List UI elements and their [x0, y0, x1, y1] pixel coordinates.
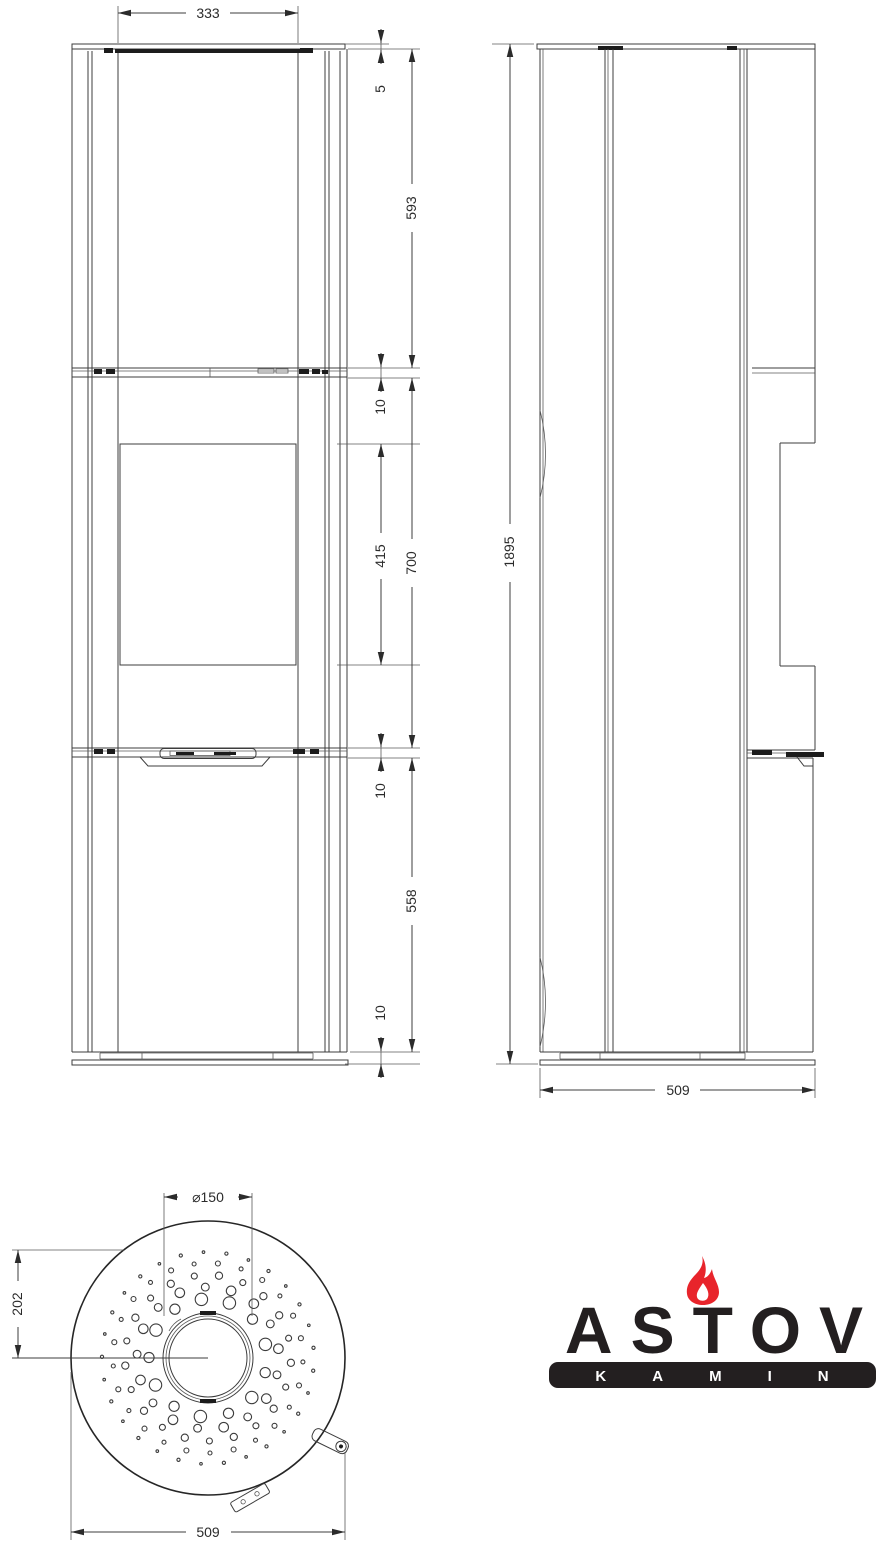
- perforation-hole: [245, 1456, 248, 1459]
- svg-text:700: 700: [403, 551, 419, 575]
- svg-text:415: 415: [372, 544, 388, 568]
- perforation-hole: [266, 1320, 274, 1328]
- technical-drawing-sheet: 333 5 593: [0, 0, 895, 1556]
- perforation-hole: [223, 1297, 235, 1309]
- perforation-hole: [177, 1458, 180, 1461]
- front-view: [72, 44, 348, 1065]
- dim-depth: 509: [540, 1068, 815, 1098]
- perforation-hole: [112, 1340, 117, 1345]
- perforation-hole: [140, 1407, 147, 1414]
- perforation-hole: [149, 1379, 161, 1391]
- perforation-hole: [168, 1415, 178, 1425]
- perforation-hole: [123, 1292, 126, 1295]
- perforation-hole: [128, 1387, 134, 1393]
- logo-brand-text: ASTOV: [565, 1293, 881, 1367]
- perforation-hole: [259, 1338, 271, 1350]
- perforation-hole: [122, 1362, 129, 1369]
- perforation-hole: [124, 1338, 130, 1344]
- perforation-hole: [179, 1254, 182, 1257]
- perforation-hole: [136, 1375, 146, 1385]
- perforation-hole: [225, 1252, 228, 1255]
- front-base-plate: [72, 1060, 348, 1065]
- perforation-hole: [278, 1294, 282, 1298]
- perforation-hole: [307, 1392, 310, 1395]
- perforation-hole: [142, 1426, 147, 1431]
- perforation-hole: [167, 1280, 174, 1287]
- perforation-hole: [111, 1311, 114, 1314]
- svg-text:1895: 1895: [501, 536, 517, 567]
- perforation-hole: [244, 1413, 252, 1421]
- perforation-hole: [104, 1333, 107, 1336]
- perforation-hole: [291, 1313, 296, 1318]
- perforation-hole: [158, 1263, 161, 1266]
- dim-upper-section: 593: [403, 49, 419, 368]
- dim-upper-gap: 10: [372, 353, 388, 415]
- perforation-hole: [283, 1431, 286, 1434]
- perforation-hole: [131, 1297, 136, 1302]
- front-divider-lower: [72, 748, 347, 766]
- perforation-hole: [230, 1433, 237, 1440]
- perforation-hole: [194, 1424, 202, 1432]
- front-dimensions: 333 5 593: [118, 5, 420, 1078]
- perforation-hole: [283, 1384, 289, 1390]
- svg-text:593: 593: [403, 196, 419, 220]
- perforation-hole: [111, 1364, 115, 1368]
- svg-text:10: 10: [372, 783, 388, 799]
- perforation-hole: [149, 1280, 153, 1284]
- perforation-hole: [298, 1303, 301, 1306]
- perforation-hole: [297, 1412, 300, 1415]
- dim-lower-section: 558: [403, 758, 419, 1052]
- top-handle: [310, 1427, 350, 1455]
- svg-text:⌀150: ⌀150: [192, 1189, 224, 1205]
- perforation-hole: [287, 1405, 291, 1409]
- side-top-plate: [537, 44, 815, 49]
- top-hinge-plate: [230, 1483, 270, 1513]
- perforation-hole: [119, 1317, 123, 1321]
- perforation-hole: [274, 1344, 284, 1354]
- svg-text:509: 509: [666, 1082, 690, 1098]
- svg-text:5: 5: [372, 85, 388, 93]
- perforation-hole: [162, 1440, 166, 1444]
- perforation-hole: [308, 1324, 311, 1327]
- perforation-hole: [175, 1288, 185, 1298]
- dim-door-window: 415: [372, 444, 388, 665]
- logo-tagline-text: KAMIN: [595, 1368, 874, 1385]
- perforation-hole: [127, 1409, 131, 1413]
- perforation-hole: [254, 1438, 258, 1442]
- perforation-hole: [116, 1387, 121, 1392]
- perforation-hole: [191, 1273, 197, 1279]
- perforation-hole: [208, 1451, 212, 1455]
- perforation-hole: [260, 1293, 267, 1300]
- perforation-hole: [184, 1448, 189, 1453]
- svg-text:558: 558: [403, 889, 419, 913]
- perforation-hole: [200, 1463, 203, 1466]
- flue-collar: [163, 1311, 253, 1403]
- perforation-hole: [122, 1420, 125, 1423]
- perforation-hole: [150, 1324, 162, 1336]
- perforation-hole: [133, 1350, 141, 1358]
- perforation-hole: [139, 1275, 142, 1278]
- perforation-hole: [202, 1251, 205, 1254]
- perforation-hole: [219, 1422, 229, 1432]
- front-divider-upper: [72, 368, 347, 377]
- perforation-hole: [287, 1359, 294, 1366]
- perforation-hole: [260, 1368, 270, 1378]
- perforation-hole: [231, 1447, 236, 1452]
- perforation-hole: [139, 1324, 149, 1334]
- perforation-hole: [272, 1423, 277, 1428]
- perforation-hole: [297, 1383, 302, 1388]
- perforation-hole: [270, 1405, 277, 1412]
- perforation-hole: [276, 1312, 283, 1319]
- perforation-hole: [159, 1424, 165, 1430]
- side-handle: [786, 752, 824, 757]
- perforation-hole: [312, 1346, 315, 1349]
- perforation-hole: [201, 1283, 209, 1291]
- dim-base-height: 10: [372, 1005, 388, 1078]
- front-body-outline: [72, 49, 347, 1052]
- perforation-hole: [148, 1295, 154, 1301]
- dim-total-height: 1895: [492, 44, 538, 1064]
- perforation-hole: [253, 1423, 259, 1429]
- perforation-hole: [265, 1445, 268, 1448]
- perforation-hole: [285, 1285, 288, 1288]
- perforation-hole: [149, 1399, 157, 1407]
- side-base: [540, 1052, 815, 1065]
- perforation-hole: [246, 1391, 258, 1403]
- perforation-hole: [194, 1410, 206, 1422]
- dim-top-plate: 5: [372, 29, 388, 93]
- perforation-hole: [273, 1371, 281, 1379]
- perforation-hole: [239, 1267, 243, 1271]
- perforation-hole: [169, 1268, 174, 1273]
- brand-logo: ASTOV KAMIN: [549, 1256, 881, 1388]
- perforation-hole: [312, 1369, 315, 1372]
- perforation-hole: [247, 1259, 250, 1262]
- dim-front-glass-width: 333: [118, 5, 298, 43]
- perforation-hole: [298, 1336, 303, 1341]
- front-door-window: [120, 444, 296, 665]
- perforation-hole: [103, 1378, 106, 1381]
- perforation-hole: [132, 1314, 139, 1321]
- perforation-hole: [260, 1278, 265, 1283]
- perforation-hole: [192, 1262, 196, 1266]
- perforation-hole: [262, 1394, 272, 1404]
- perforation-hole: [110, 1400, 113, 1403]
- front-top-glass-edge: [115, 49, 300, 53]
- perforation-hole: [156, 1450, 159, 1453]
- perforation-hole: [169, 1401, 179, 1411]
- side-door-profile: [747, 49, 824, 1052]
- perforation-hole: [137, 1436, 140, 1439]
- perforation-hole: [226, 1286, 236, 1296]
- perforation-hole: [267, 1269, 270, 1272]
- side-base-plate: [540, 1060, 815, 1065]
- dim-lower-gap: 10: [372, 733, 388, 799]
- perforation-hole: [154, 1304, 162, 1312]
- svg-text:509: 509: [196, 1524, 220, 1540]
- perforation-hole: [222, 1461, 225, 1464]
- perforation-hole: [286, 1335, 292, 1341]
- svg-text:10: 10: [372, 1005, 388, 1021]
- perforation-hole: [247, 1314, 257, 1324]
- perforation-hole: [181, 1434, 188, 1441]
- perforation-hole: [240, 1280, 246, 1286]
- perforation-hole: [206, 1438, 212, 1444]
- side-body-outline: [540, 49, 747, 1052]
- perforation-hole: [301, 1360, 305, 1364]
- stove-dimension-drawing: 333 5 593: [0, 0, 895, 1556]
- perforation-hole: [223, 1408, 233, 1418]
- front-base: [72, 1052, 348, 1065]
- dim-middle-section: 700: [403, 378, 419, 748]
- perforation-hole: [215, 1261, 220, 1266]
- perforation-hole: [215, 1272, 222, 1279]
- svg-text:333: 333: [196, 5, 220, 21]
- perforation-hole: [249, 1299, 259, 1309]
- top-view: [12, 1221, 350, 1513]
- perforation-hole: [195, 1293, 207, 1305]
- svg-text:202: 202: [9, 1292, 25, 1316]
- side-view: [537, 44, 824, 1065]
- svg-text:10: 10: [372, 399, 388, 415]
- perforation-hole: [170, 1304, 180, 1314]
